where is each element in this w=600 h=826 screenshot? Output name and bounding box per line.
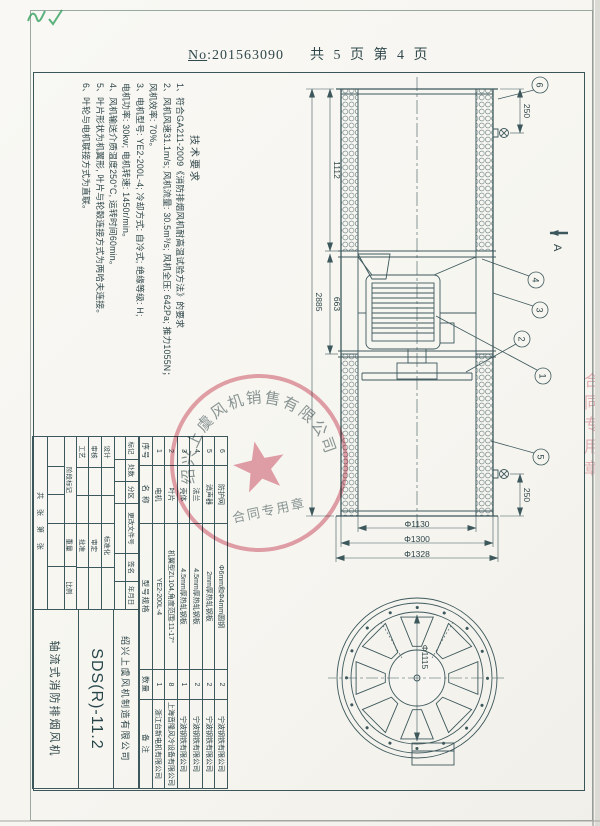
drawing-code: SDS(R)-11.2: [78, 610, 113, 788]
revision-header-cell: 标记: [126, 437, 138, 459]
impeller-end-view: [328, 598, 504, 765]
revision-empty-cell: [115, 581, 126, 609]
scan-edge-bottom: [0, 820, 600, 822]
balloon-3: 3: [535, 307, 545, 312]
company-name: 绍兴上虞风机制造有限公司: [113, 610, 138, 788]
bom-cell: 2: [190, 669, 202, 699]
bom-header-row: 序号名 称型号规格数量备 注: [140, 437, 153, 788]
dim-lug-left: 250: [522, 104, 532, 118]
sign-cell: 设计: [102, 437, 114, 467]
section-label: A: [551, 244, 563, 252]
bom-cell: 宁波钢铁有限公司: [203, 699, 215, 788]
dim-lug-right: 250: [522, 488, 532, 502]
tech-line: 风机效率: 70%。: [146, 83, 159, 435]
side-view: [336, 77, 509, 530]
bom-cell: YE2-200L-4: [153, 523, 165, 669]
dim-flange-dia: Φ1328: [404, 549, 430, 559]
title-block: 标记处数分区更改文件号签名年月日 设计标准化 审核审定 工艺批准 阶段标记重量比…: [32, 436, 139, 789]
stage-header-cell: 重量: [65, 523, 76, 566]
bom-cell: 8: [165, 669, 177, 699]
stage-value-cell: [48, 494, 65, 523]
stage-value-cell: [48, 523, 65, 566]
dim-shell-dia: Φ1300: [404, 534, 430, 544]
revision-header-cell: 处数: [126, 459, 138, 481]
product-name: 轴流式消防排烟风机: [33, 610, 78, 788]
revision-header-cell: 年月日: [126, 581, 138, 609]
sign-row-2: 工艺批准: [77, 437, 90, 609]
revision-empty-cell: [115, 503, 126, 553]
sign-cell: [102, 567, 114, 609]
balloon-1: 1: [538, 373, 548, 378]
bom-cell: 电机: [153, 465, 165, 523]
lifting-lug-icon: [493, 129, 509, 138]
stage-header-cell: 比例: [65, 566, 76, 609]
bom-cell: 2: [215, 669, 227, 699]
sign-cell: [102, 495, 114, 523]
motor-junction-box: [440, 323, 454, 343]
tech-line: 5、叶片形状为机翼形, 叶片与轮毂连接方式为两哈夫连接。: [92, 83, 105, 435]
red-company-stamp: 绍兴上虞风机销售有限公司 合同专用章: [149, 353, 370, 574]
sign-cell: 工艺: [77, 437, 89, 467]
bom-cell: 型号规格: [140, 523, 152, 669]
bom-cell: 宁波钢铁有限公司: [178, 699, 190, 788]
tech-line: 3、电机型号: YE2-200L-4; 冷却方式: 自冷式; 绝缘等级: H;: [132, 83, 145, 435]
tech-line: 4、风机输送介质温度250°C, 运转时间60min。: [106, 83, 119, 435]
stage-value-cell: [48, 466, 65, 494]
title-block-left: 标记处数分区更改文件号签名年月日 设计标准化 审核审定 工艺批准 阶段标记重量比…: [33, 437, 138, 609]
bom-cell: 序号: [140, 437, 152, 465]
sign-cell: [77, 467, 89, 495]
scanned-sheet: No:201563090共 5 页 第 4 页: [0, 0, 600, 826]
sign-row-1: 审核审定: [89, 437, 102, 609]
bom-cell: 宁波钢铁有限公司: [190, 699, 202, 788]
revision-header-cell: 分区: [126, 481, 138, 503]
sign-cell: [77, 495, 89, 523]
scan-edge-right-shadow: [595, 0, 600, 826]
balloon-5: 5: [536, 454, 546, 459]
sign-cell: [89, 495, 101, 523]
bom-cell: 数量: [140, 669, 152, 699]
revision-empty-cell: [115, 459, 126, 481]
sign-cell: 批准: [77, 523, 89, 567]
section-mark-a: A: [550, 233, 568, 252]
balloon-4: 4: [531, 277, 541, 282]
revision-header-cell: 签名: [126, 553, 138, 581]
tech-line: 6、叶轮与电机联接方式为直联。: [79, 83, 92, 435]
title-block-right: 绍兴上虞风机制造有限公司 SDS(R)-11.2 轴流式消防排烟风机: [33, 609, 138, 788]
sign-cell: [77, 567, 89, 609]
tech-line: 电机功率: 30kw; 电机转速: 1450r/min。: [119, 83, 132, 435]
bom-cell: 1: [178, 669, 190, 699]
bom-cell: 浙江台新电机有限公司: [153, 699, 165, 788]
revision-empty-cell: [115, 437, 126, 459]
bom-cell: 备 注: [140, 699, 152, 788]
bom-cell: 机翼型ZL104,角度范围:11-17°: [165, 523, 177, 669]
green-check-mark: [24, 4, 68, 30]
motor-fins: [372, 283, 434, 341]
stamp-star-icon: [229, 436, 289, 494]
tech-lines: 1、符合GA211-2009《消防排烟风机耐高温试验方法》的要求2、风机风速31…: [79, 83, 186, 435]
dim-left-section: 1112: [332, 161, 342, 179]
revision-header-row: 标记处数分区更改文件号签名年月日: [126, 437, 138, 609]
bom-cell: 名 称: [140, 465, 152, 523]
stage-value-cell: [48, 566, 65, 609]
page-count: 共 5 页 第 4 页: [310, 48, 431, 63]
bom-row: 1电机YE2-200L-41浙江台新电机有限公司: [153, 437, 166, 788]
sign-cell: [89, 467, 101, 495]
technical-requirements: 技术要求 1、符合GA211-2009《消防排烟风机耐高温试验方法》的要求2、风…: [79, 83, 203, 435]
tech-line: 2、风机风速31.1m/s; 风机流量: 30.5m³/s; 风机全压: 642…: [159, 83, 172, 435]
bom-cell: 上海音隆风冷设备有限公司: [165, 699, 177, 788]
sign-cell: 标准化: [102, 523, 114, 567]
revision-header-cell: 更改文件号: [126, 503, 138, 553]
stage-value-row: [48, 437, 66, 609]
lifting-lug-icon: [493, 470, 509, 479]
sign-row-0: 设计标准化: [102, 437, 115, 609]
motor-housing: [366, 275, 440, 349]
sheet-count: 共 张 第 张: [33, 437, 48, 609]
dim-inner-dia: Φ1130: [404, 519, 429, 529]
sign-cell: 审核: [89, 437, 101, 467]
bom-cell: 宁波钢铁有限公司: [215, 699, 227, 788]
stage-header-cell: 阶段标记: [65, 437, 76, 523]
stamp-banner-text: 合同专用章: [231, 495, 307, 525]
stage-header-row: 阶段标记重量比例: [65, 437, 77, 609]
revision-empty-cell: [115, 481, 126, 503]
revision-empty-cell: [115, 553, 126, 581]
sign-cell: 审定: [89, 523, 101, 567]
dim-overall: 2885: [314, 293, 324, 312]
sign-cell: [89, 567, 101, 609]
balloon-2: 2: [517, 336, 527, 341]
revision-empty-row: [115, 437, 127, 609]
dim-impeller-dia: Φ1115: [420, 645, 430, 670]
doc-number-prefix: No: [188, 48, 207, 63]
dim-mid-section: 663: [332, 297, 342, 311]
tech-line: 1、符合GA211-2009《消防排烟风机耐高温试验方法》的要求: [173, 83, 186, 435]
balloon-numbers: 6 4 3 2 1 5: [517, 82, 548, 459]
sign-cell: [102, 467, 114, 495]
page-number-header: No:201563090共 5 页 第 4 页: [188, 44, 431, 64]
stage-value-cell: [48, 437, 65, 466]
doc-number: :201563090: [207, 48, 284, 63]
bom-cell: 2: [203, 669, 215, 699]
bom-cell: 1: [153, 669, 165, 699]
scan-edge-right: [592, 0, 594, 826]
balloon-6: 6: [535, 82, 545, 87]
